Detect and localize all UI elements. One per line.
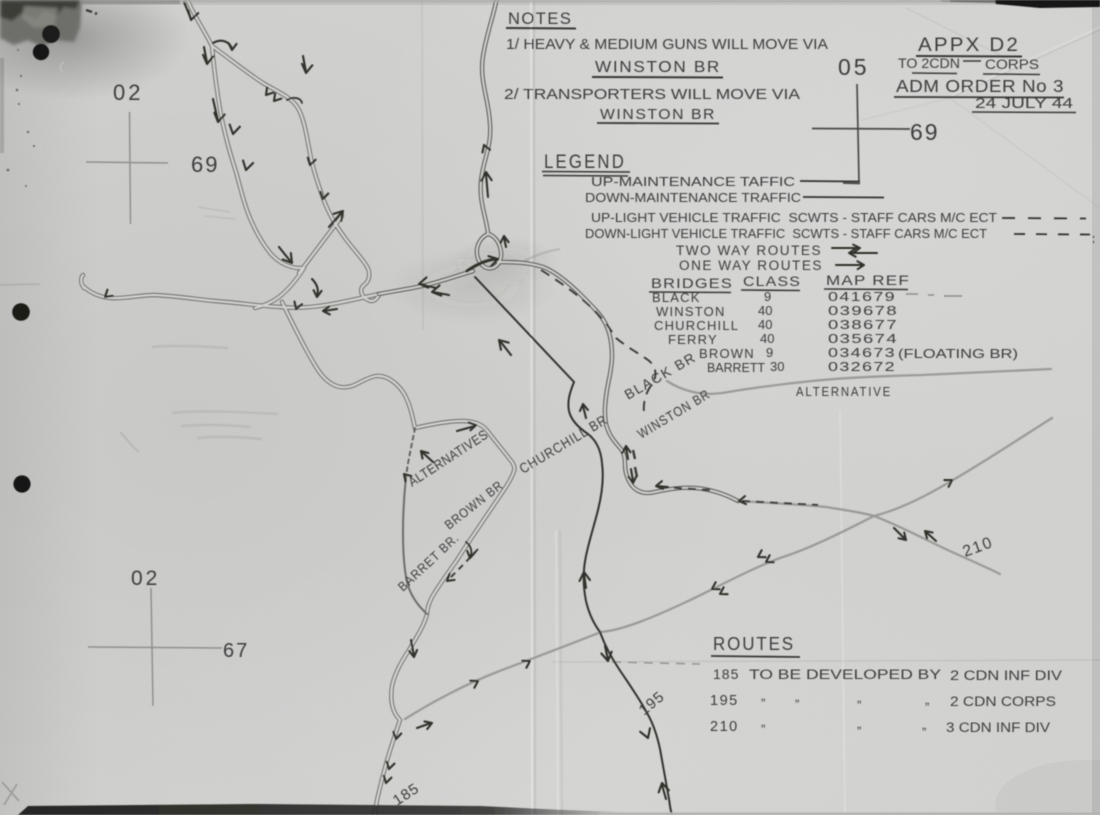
- svg-text:TWO WAY ROUTES: TWO WAY ROUTES: [676, 243, 822, 258]
- svg-text:WINSTON BR: WINSTON BR: [600, 106, 716, 123]
- svg-text:ADM ORDER No 3: ADM ORDER No 3: [896, 76, 1064, 96]
- svg-text:TO 2CDN: TO 2CDN: [898, 56, 960, 71]
- svg-text:„: „: [761, 688, 765, 703]
- svg-text:038677: 038677: [828, 317, 898, 332]
- svg-text:210: 210: [710, 719, 739, 735]
- svg-text:CLASS: CLASS: [743, 274, 801, 289]
- svg-text:30: 30: [770, 359, 784, 374]
- svg-text:02: 02: [131, 567, 160, 590]
- svg-text:ALTERNATIVE: ALTERNATIVE: [796, 385, 892, 399]
- svg-text:034673: 034673: [828, 345, 896, 360]
- svg-text:40: 40: [760, 331, 774, 346]
- svg-text:„: „: [857, 690, 861, 705]
- svg-text:ROUTES: ROUTES: [713, 634, 795, 654]
- svg-text:FERRY: FERRY: [668, 332, 718, 347]
- svg-text:WINSTON BR: WINSTON BR: [595, 59, 721, 76]
- svg-text:ONE WAY ROUTES: ONE WAY ROUTES: [679, 258, 823, 273]
- svg-text:„: „: [925, 692, 929, 707]
- svg-text:3 CDN INF DIV: 3 CDN INF DIV: [946, 720, 1050, 735]
- svg-text:039678: 039678: [828, 303, 898, 318]
- svg-text:40: 40: [758, 317, 772, 332]
- svg-text:BLACK: BLACK: [652, 290, 701, 305]
- svg-text:„: „: [922, 717, 926, 732]
- svg-text:041679: 041679: [828, 289, 896, 304]
- svg-text:BRIDGES: BRIDGES: [651, 276, 733, 291]
- svg-text:67: 67: [223, 640, 249, 662]
- svg-text:DOWN-LIGHT VEHICLE TRAFFIC SC: DOWN-LIGHT VEHICLE TRAFFIC SCWTS - STAFF…: [585, 226, 987, 241]
- svg-text:MAP REF: MAP REF: [826, 273, 910, 288]
- svg-text:40: 40: [758, 303, 772, 318]
- svg-text:1/ HEAVY & MEDIUM GUNS WILL MO: 1/ HEAVY & MEDIUM GUNS WILL MOVE VIA: [506, 37, 828, 53]
- svg-text:2 CDN INF DIV: 2 CDN INF DIV: [950, 668, 1062, 683]
- svg-text:69: 69: [910, 119, 940, 145]
- svg-text:(FLOATING BR): (FLOATING BR): [898, 347, 1018, 361]
- svg-text:LEGEND: LEGEND: [544, 152, 626, 173]
- svg-text:195: 195: [710, 693, 739, 709]
- svg-text:BARRETT: BARRETT: [707, 360, 765, 375]
- svg-text:9: 9: [766, 345, 773, 360]
- svg-text:„: „: [761, 714, 765, 729]
- svg-text:„: „: [857, 716, 861, 731]
- svg-text:WINSTON: WINSTON: [656, 304, 726, 319]
- svg-text:2 CDN CORPS: 2 CDN CORPS: [950, 694, 1056, 709]
- svg-text:05: 05: [838, 54, 870, 80]
- svg-text:02: 02: [113, 80, 143, 105]
- svg-text:TO BE DEVELOPED BY: TO BE DEVELOPED BY: [749, 667, 941, 682]
- svg-text:032672: 032672: [828, 359, 896, 374]
- svg-text:CHURCHILL: CHURCHILL: [654, 318, 739, 333]
- svg-text:24 JULY 44: 24 JULY 44: [975, 96, 1073, 112]
- svg-text:CORPS: CORPS: [985, 57, 1039, 72]
- svg-text:DOWN-MAINTENANCE TRAFFIC: DOWN-MAINTENANCE TRAFFIC: [585, 190, 801, 205]
- svg-text:NOTES: NOTES: [508, 10, 572, 28]
- svg-text:69: 69: [191, 152, 219, 177]
- svg-text:9: 9: [764, 289, 771, 304]
- svg-text:185: 185: [713, 666, 739, 682]
- svg-text:UP-LIGHT VEHICLE TRAFFIC SCWT: UP-LIGHT VEHICLE TRAFFIC SCWTS - STAFF C…: [591, 210, 997, 225]
- svg-text:035674: 035674: [828, 331, 898, 346]
- svg-text:„: „: [795, 689, 799, 704]
- svg-text:2/ TRANSPORTERS WILL MOVE VIA: 2/ TRANSPORTERS WILL MOVE VIA: [504, 87, 800, 103]
- svg-text:UP-MAINTENANCE TAFFIC: UP-MAINTENANCE TAFFIC: [591, 174, 795, 189]
- svg-text:BROWN: BROWN: [699, 346, 755, 361]
- svg-text:APPX D2: APPX D2: [918, 35, 1020, 56]
